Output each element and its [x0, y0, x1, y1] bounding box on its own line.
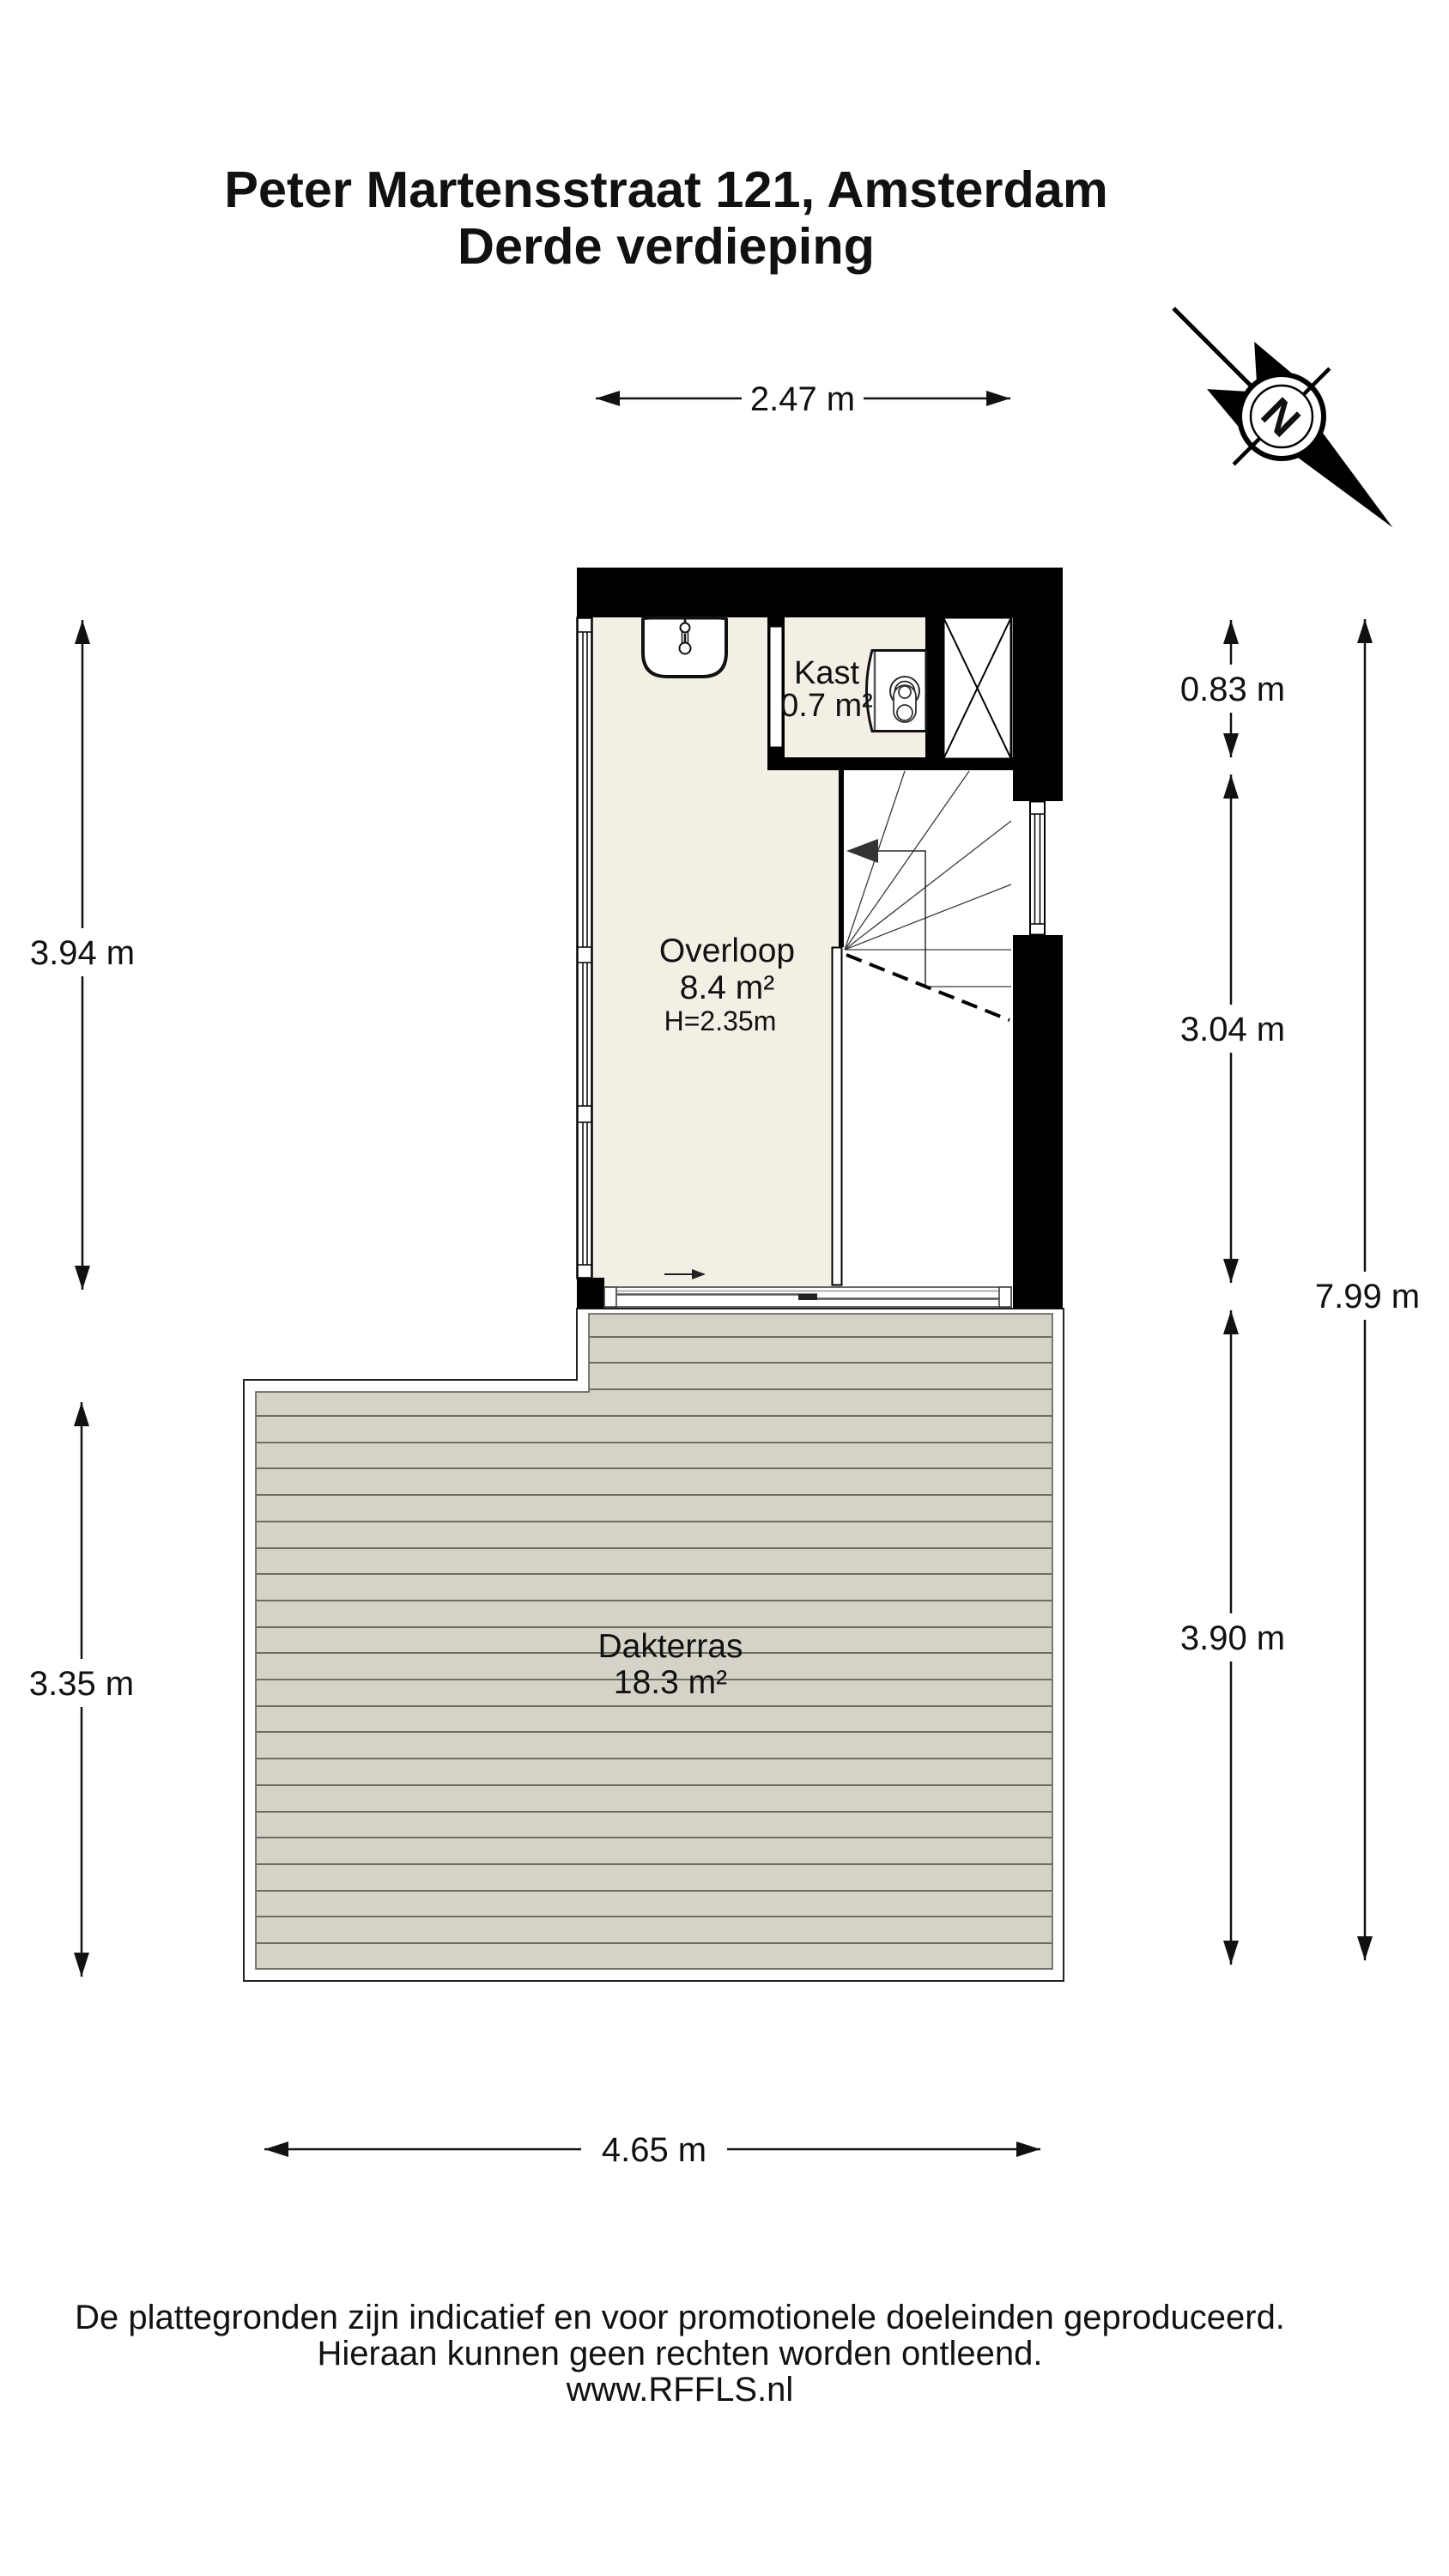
svg-text:3.35 m: 3.35 m	[29, 1665, 134, 1703]
svg-text:4.65 m: 4.65 m	[602, 2131, 706, 2169]
svg-text:Dakterras: Dakterras	[597, 1628, 743, 1665]
svg-text:Peter Martensstraat 121, Amste: Peter Martensstraat 121, Amsterdam	[224, 161, 1108, 218]
svg-text:3.04 m: 3.04 m	[1180, 1011, 1285, 1048]
svg-text:De plattegronden zijn indicati: De plattegronden zijn indicatief en voor…	[75, 2299, 1285, 2336]
svg-text:3.94 m: 3.94 m	[30, 934, 135, 972]
svg-text:7.99 m: 7.99 m	[1315, 1278, 1420, 1315]
svg-text:H=2.35m: H=2.35m	[664, 1005, 777, 1036]
svg-text:Derde verdieping: Derde verdieping	[458, 217, 875, 275]
svg-text:www.RFFLS.nl: www.RFFLS.nl	[566, 2371, 794, 2409]
svg-text:Hieraan kunnen geen rechten wo: Hieraan kunnen geen rechten worden ontle…	[317, 2335, 1042, 2372]
svg-text:0.7 m²: 0.7 m²	[780, 688, 873, 724]
svg-text:3.90 m: 3.90 m	[1180, 1619, 1285, 1657]
svg-text:8.4 m²: 8.4 m²	[680, 969, 775, 1006]
svg-text:Kast: Kast	[794, 655, 859, 691]
svg-text:Overloop: Overloop	[659, 933, 795, 969]
svg-text:18.3 m²: 18.3 m²	[614, 1664, 727, 1701]
svg-text:2.47 m: 2.47 m	[750, 380, 855, 418]
svg-text:0.83 m: 0.83 m	[1180, 671, 1285, 708]
